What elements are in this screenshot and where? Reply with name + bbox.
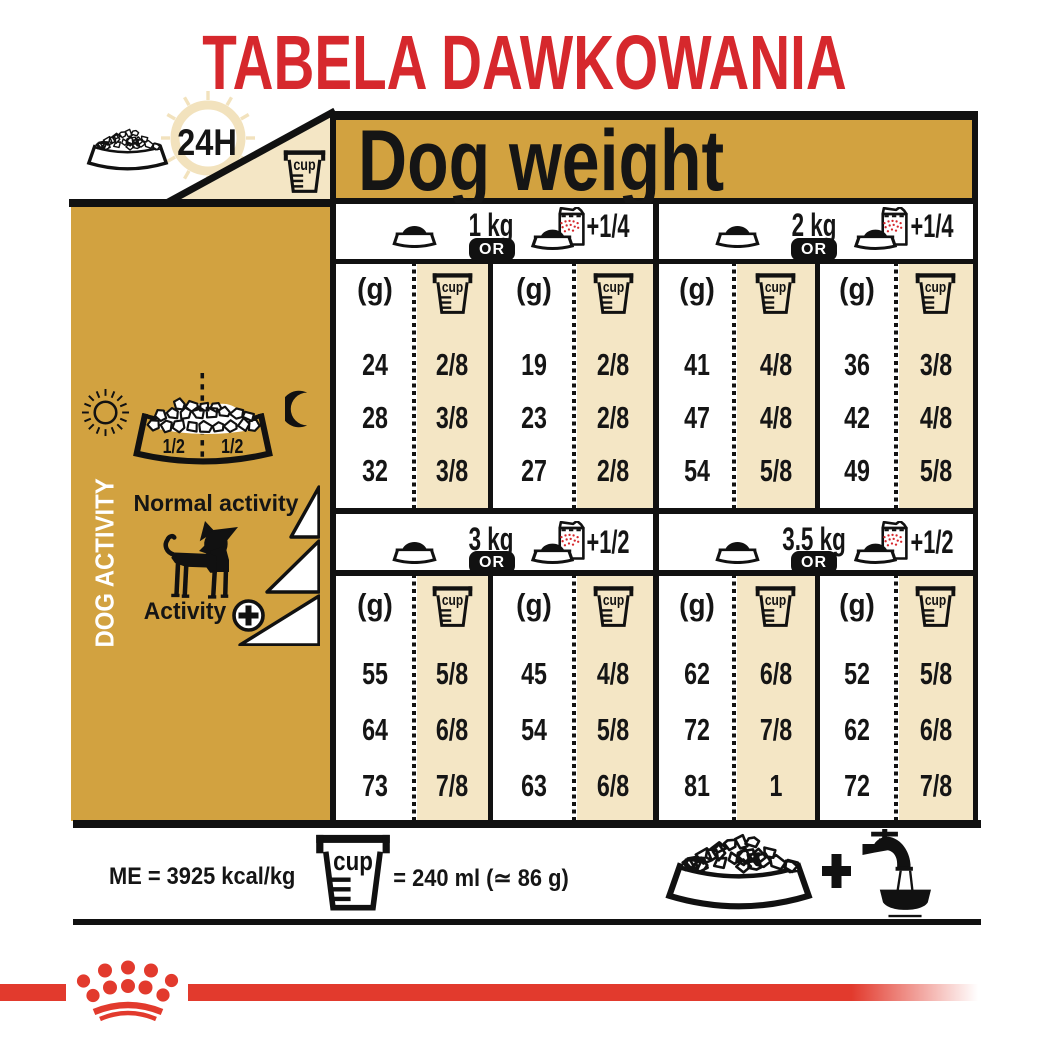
svg-text:1/2: 1/2 bbox=[163, 435, 185, 457]
svg-text:1/2: 1/2 bbox=[221, 435, 243, 457]
